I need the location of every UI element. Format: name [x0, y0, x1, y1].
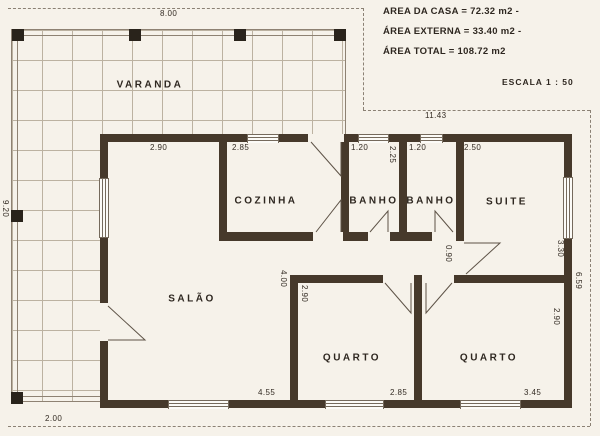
- room-label-banho: BANHO: [349, 196, 398, 207]
- dimension-label: 1.20: [409, 144, 426, 152]
- dimension-label: 3.30: [556, 240, 564, 257]
- dimension-label: 4.00: [279, 270, 287, 287]
- room-label-quarto: QUARTO: [323, 353, 381, 364]
- dimension-label: 3.45: [524, 389, 541, 397]
- labels-layer: VARANDACOZINHABANHOBANHOSUITESALÃOQUARTO…: [0, 0, 600, 436]
- dimension-label: 6.59: [574, 272, 582, 289]
- room-label-suite: SUITE: [486, 197, 528, 208]
- dimension-label: 2.90: [150, 144, 167, 152]
- dimension-label: 2.90: [300, 285, 308, 302]
- dimension-label: 8.00: [160, 10, 177, 18]
- room-label-quarto: QUARTO: [460, 353, 518, 364]
- dimension-label: 1.20: [351, 144, 368, 152]
- dimension-label: 11.43: [425, 112, 446, 120]
- dimension-label: 2.90: [552, 308, 560, 325]
- dimension-label: 2.25: [388, 146, 396, 163]
- room-label-banho: BANHO: [406, 196, 455, 207]
- dimension-label: 2.85: [232, 144, 249, 152]
- dimension-label: 9.20: [1, 200, 9, 217]
- room-label-varanda: VARANDA: [117, 80, 184, 91]
- dimension-label: 0.90: [444, 245, 452, 262]
- floor-plan-sheet: AREA DA CASA = 72.32 m2 - ÁREA EXTERNA =…: [0, 0, 600, 436]
- dimension-label: 2.85: [390, 389, 407, 397]
- dimension-label: 2.50: [464, 144, 481, 152]
- dimension-label: 4.55: [258, 389, 275, 397]
- room-label-salão: SALÃO: [168, 294, 216, 305]
- room-label-cozinha: COZINHA: [234, 196, 297, 207]
- dimension-label: 2.00: [45, 415, 62, 423]
